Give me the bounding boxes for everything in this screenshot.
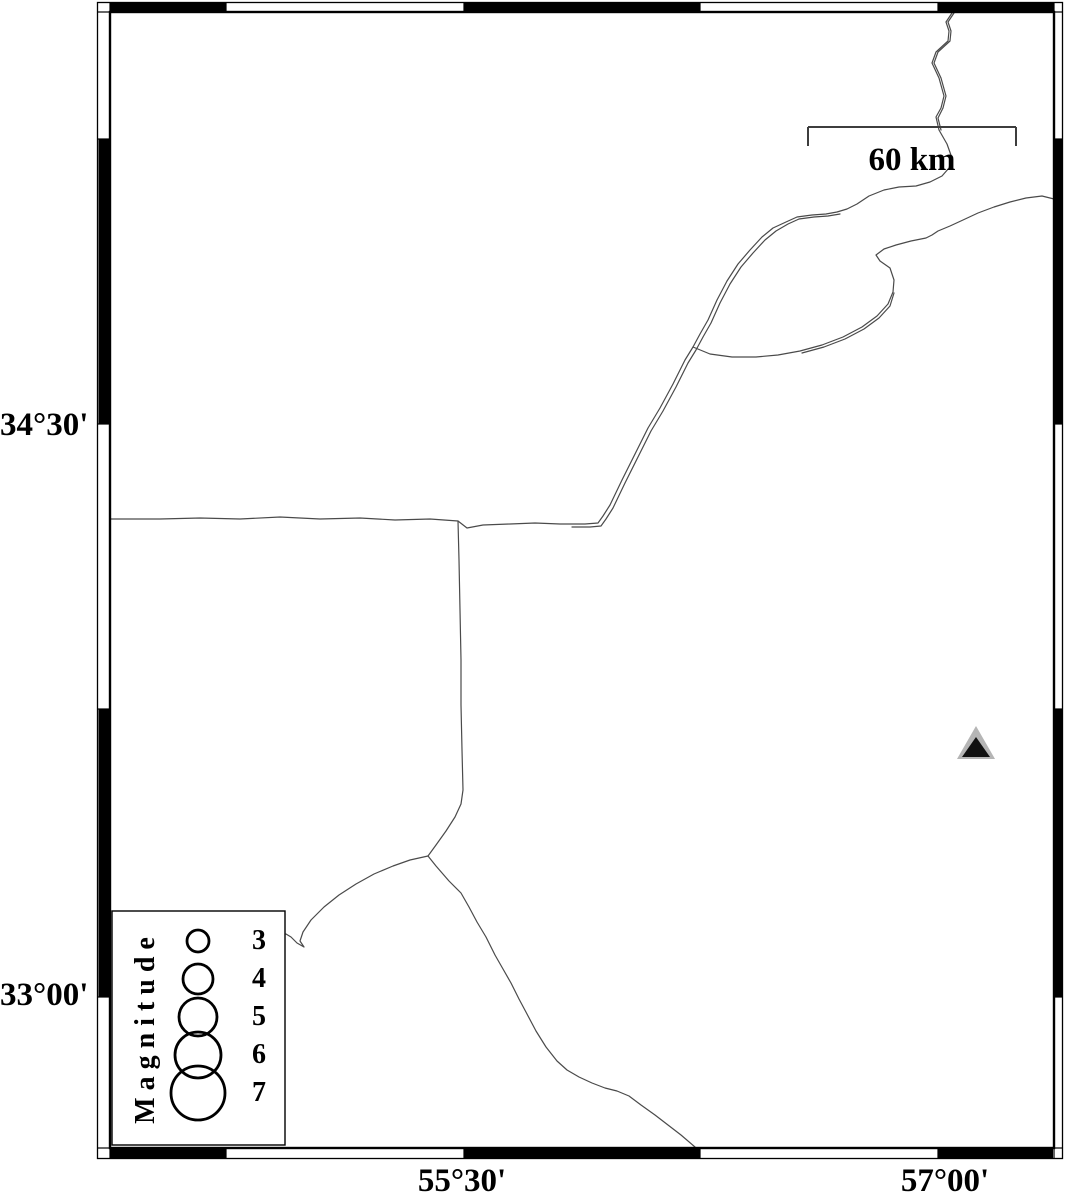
map-figure: 34°30' 33°00' 55°30' 57°00' 60 km Magnit… — [0, 0, 1066, 1196]
lon-annotation-55-30: 55°30' — [382, 1161, 542, 1196]
scale-bar-label: 60 km — [830, 142, 994, 178]
legend-value-6: 6 — [240, 1035, 278, 1075]
road-southwest — [286, 856, 428, 947]
legend-value-3: 3 — [240, 921, 278, 961]
legend-title: Magnitude — [126, 917, 166, 1137]
lat-annotation-34-30: 34°30' — [0, 405, 88, 445]
road-southeast — [428, 856, 695, 1147]
station-triangle-icon — [957, 726, 995, 759]
road-vertical — [428, 521, 463, 856]
lon-annotation-57-00: 57°00' — [865, 1161, 1025, 1196]
legend-value-5: 5 — [240, 997, 278, 1037]
road-loop-arm — [693, 196, 1054, 357]
legend-value-4: 4 — [240, 959, 278, 999]
road-diagonal-casing — [572, 214, 840, 527]
lat-annotation-33-00: 33°00' — [0, 975, 88, 1015]
road-north-diagonal — [110, 13, 952, 528]
road-north-diagonal-casing — [934, 13, 954, 130]
legend-value-7: 7 — [240, 1073, 278, 1113]
road-loop-arm-casing — [802, 293, 894, 353]
